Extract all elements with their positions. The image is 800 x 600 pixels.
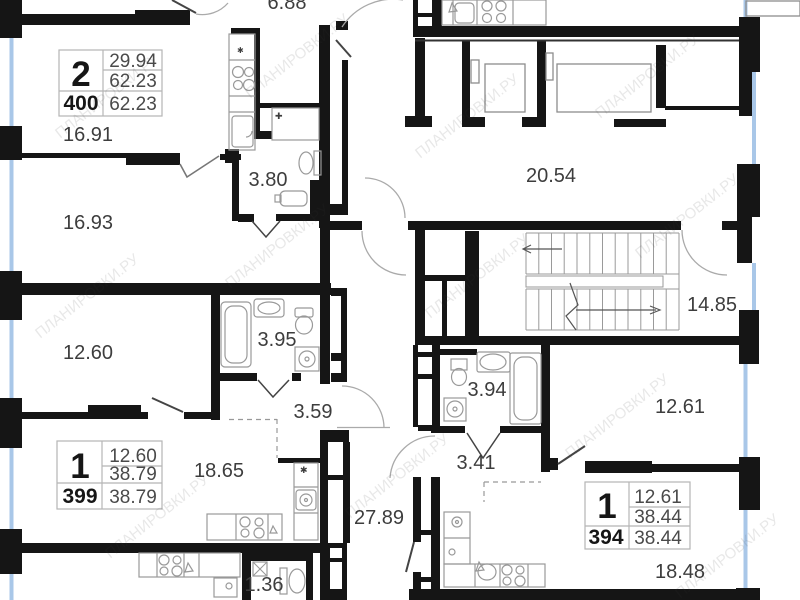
svg-text:12.61: 12.61 — [655, 396, 705, 418]
svg-text:3.59: 3.59 — [294, 401, 333, 423]
svg-text:✱: ✱ — [237, 46, 244, 55]
svg-text:3.80: 3.80 — [249, 169, 288, 191]
svg-text:1.36: 1.36 — [245, 574, 284, 596]
svg-text:399: 399 — [62, 485, 97, 508]
svg-text:3.94: 3.94 — [468, 379, 507, 401]
svg-text:1: 1 — [70, 447, 89, 486]
svg-text:2: 2 — [71, 55, 90, 94]
svg-text:20.54: 20.54 — [526, 165, 576, 187]
svg-text:✱: ✱ — [300, 465, 308, 475]
svg-text:✚: ✚ — [275, 111, 283, 121]
svg-text:6.88: 6.88 — [268, 0, 307, 14]
svg-text:38.44: 38.44 — [634, 528, 682, 549]
svg-text:3.95: 3.95 — [258, 329, 297, 351]
svg-text:38.79: 38.79 — [109, 487, 157, 508]
svg-text:12.61: 12.61 — [634, 487, 682, 508]
svg-text:38.44: 38.44 — [634, 507, 682, 528]
svg-text:1: 1 — [597, 487, 616, 526]
svg-text:12.60: 12.60 — [63, 342, 113, 364]
svg-text:14.85: 14.85 — [687, 294, 737, 316]
svg-text:3.41: 3.41 — [457, 452, 496, 474]
svg-text:16.93: 16.93 — [63, 212, 113, 234]
svg-text:38.79: 38.79 — [109, 464, 157, 485]
svg-text:394: 394 — [588, 526, 623, 549]
